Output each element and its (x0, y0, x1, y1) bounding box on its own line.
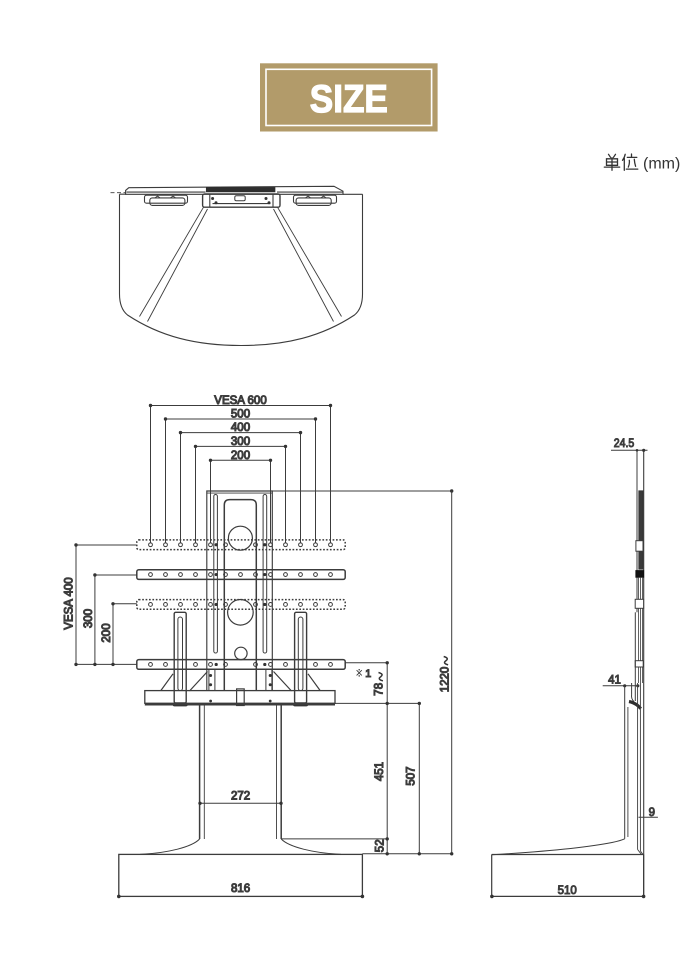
svg-text:507: 507 (406, 766, 418, 785)
svg-text:41: 41 (608, 675, 621, 687)
svg-text:1: 1 (365, 668, 371, 680)
svg-text:(mm): (mm) (643, 156, 680, 173)
svg-text:400: 400 (231, 422, 250, 434)
svg-text:52: 52 (375, 839, 387, 852)
svg-text:200: 200 (101, 623, 113, 642)
svg-text:78: 78 (374, 683, 386, 696)
svg-text:500: 500 (231, 409, 250, 421)
svg-text:24.5: 24.5 (614, 438, 635, 450)
svg-text:200: 200 (231, 450, 250, 462)
svg-text:272: 272 (231, 791, 250, 803)
svg-text:1220: 1220 (439, 667, 451, 693)
svg-text:SIZE: SIZE (310, 78, 388, 121)
svg-text:816: 816 (231, 883, 250, 895)
svg-text:9: 9 (649, 807, 655, 819)
svg-text:510: 510 (558, 885, 577, 897)
svg-text:451: 451 (374, 762, 386, 781)
svg-text:VESA 400: VESA 400 (64, 577, 76, 629)
svg-text:300: 300 (83, 609, 95, 628)
svg-text:300: 300 (231, 436, 250, 448)
svg-text:VESA 600: VESA 600 (214, 395, 266, 407)
